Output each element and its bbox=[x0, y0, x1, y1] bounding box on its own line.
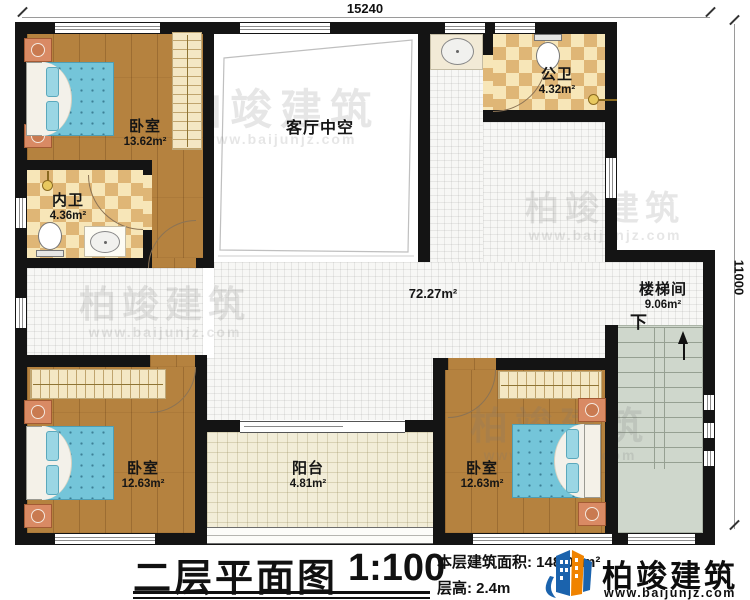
window bbox=[15, 298, 27, 328]
inner-bathroom-door-floor bbox=[143, 175, 152, 230]
wall bbox=[605, 325, 618, 545]
bed-headboard bbox=[584, 424, 601, 498]
balcony-sliding-door bbox=[240, 421, 405, 433]
bed-headboard bbox=[26, 426, 43, 500]
stairs-down-label: 下 bbox=[630, 308, 647, 333]
dimension-line-top bbox=[22, 17, 710, 18]
wall bbox=[15, 355, 150, 367]
title-underline bbox=[133, 597, 430, 599]
wall bbox=[433, 358, 445, 545]
wall bbox=[418, 22, 430, 262]
pillow bbox=[566, 429, 579, 459]
pillow bbox=[46, 67, 59, 97]
wall bbox=[195, 355, 207, 545]
room-label-public-bathroom: 公卫 4.32m² bbox=[517, 66, 597, 98]
stair-center-rail bbox=[654, 327, 665, 469]
nightstand bbox=[24, 400, 52, 424]
hallway-floor-1 bbox=[483, 122, 605, 262]
nightstand bbox=[578, 398, 606, 422]
window bbox=[495, 22, 535, 34]
window bbox=[605, 158, 617, 198]
hallway-floor-2 bbox=[27, 268, 203, 355]
nightstand bbox=[24, 38, 52, 62]
window bbox=[55, 22, 160, 34]
room-label-bedroom-bottom-right: 卧室 12.63m² bbox=[432, 460, 532, 492]
sink-icon bbox=[441, 38, 474, 65]
wardrobe bbox=[498, 371, 602, 399]
window bbox=[703, 395, 715, 410]
stair-arrow-stem bbox=[683, 342, 685, 360]
window bbox=[703, 423, 715, 438]
toilet-tank bbox=[534, 34, 562, 41]
wall bbox=[483, 110, 617, 122]
living-void-outline bbox=[214, 34, 418, 262]
room-label-bedroom-bottom-left: 卧室 12.63m² bbox=[93, 460, 193, 492]
pillow bbox=[46, 465, 59, 495]
bedroom-bottom-right-door-floor bbox=[448, 358, 496, 370]
bed-headboard bbox=[26, 62, 43, 136]
title-underline bbox=[133, 591, 430, 594]
floor-height-text: 层高: 2.4m bbox=[437, 577, 510, 598]
wall bbox=[15, 258, 148, 268]
pillow bbox=[566, 463, 579, 493]
dimension-tick bbox=[705, 7, 716, 18]
floor-plan: 柏竣建筑 www.baijunjz.com 柏竣建筑 www.baijunjz.… bbox=[0, 0, 750, 600]
room-label-inner-bathroom: 内卫 4.36m² bbox=[28, 192, 108, 224]
hallway-floor-3 bbox=[214, 262, 605, 358]
window bbox=[703, 451, 715, 466]
pillow bbox=[46, 101, 59, 131]
wall bbox=[15, 160, 152, 170]
wall bbox=[605, 250, 715, 262]
window bbox=[15, 198, 27, 228]
public-bathroom-door-floor bbox=[483, 55, 493, 110]
sink-icon bbox=[90, 231, 120, 253]
hallway-floor-4 bbox=[207, 358, 433, 420]
window bbox=[445, 22, 485, 34]
plan-scale: 1:100 bbox=[348, 547, 445, 590]
window bbox=[628, 533, 695, 545]
balcony-railing bbox=[207, 527, 433, 544]
bedroom-bottom-left-door-floor bbox=[150, 355, 196, 367]
living-void-area bbox=[214, 34, 418, 262]
wardrobe bbox=[30, 369, 166, 399]
wall bbox=[203, 22, 214, 268]
window bbox=[473, 533, 612, 545]
shower-icon bbox=[42, 180, 53, 191]
window bbox=[240, 22, 330, 34]
dimension-tick bbox=[17, 7, 28, 18]
dimension-right-value: 11000 bbox=[732, 253, 747, 303]
room-label-bedroom-top-left: 卧室 13.62m² bbox=[95, 118, 195, 150]
toilet-tank bbox=[36, 250, 64, 257]
wall bbox=[195, 420, 240, 432]
window bbox=[55, 533, 155, 545]
wall bbox=[605, 22, 617, 262]
wall bbox=[496, 358, 617, 370]
logo-website: www.baijunjz.com bbox=[604, 586, 736, 600]
wall bbox=[143, 160, 152, 175]
nightstand bbox=[24, 504, 52, 528]
room-label-hallway-area: 72.27m² bbox=[398, 286, 468, 302]
shower-cord bbox=[47, 171, 49, 181]
logo-icon bbox=[540, 546, 598, 600]
wall bbox=[196, 258, 214, 268]
dimension-top-value: 15240 bbox=[320, 1, 410, 16]
shower-cord bbox=[599, 99, 617, 101]
toilet-icon bbox=[38, 222, 62, 250]
wall bbox=[433, 358, 448, 370]
room-label-balcony: 阳台 4.81m² bbox=[258, 460, 358, 492]
nightstand bbox=[578, 502, 606, 526]
room-label-living-void: 客厅中空 bbox=[250, 119, 390, 138]
pillow bbox=[46, 431, 59, 461]
